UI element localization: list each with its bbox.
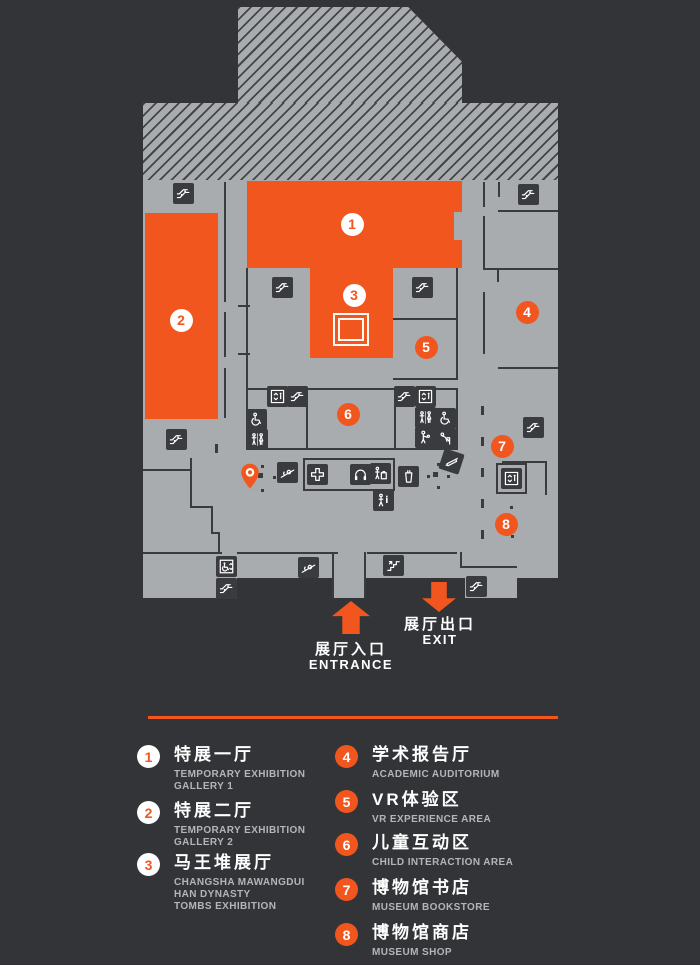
exit-label-en: EXIT [375, 632, 505, 647]
escalator-icon [523, 417, 544, 438]
legend-subtitle-1: TEMPORARY EXHIBITIONGALLERY 1 [174, 769, 305, 793]
baby-care-icon [415, 427, 436, 448]
legend-subtitle-6: CHILD INTERACTION AREA [372, 857, 513, 869]
legend-text-8: 博物馆商店MUSEUM SHOP [372, 924, 472, 959]
legend-item-6: 6儿童互动区CHILD INTERACTION AREA [335, 834, 513, 869]
column-dot-mark [427, 475, 430, 478]
wall-dash-mark [481, 530, 484, 539]
escalator-icon [287, 386, 308, 407]
column-dot-mark [510, 506, 513, 509]
escalator-icon [166, 429, 187, 450]
wall-segment [393, 378, 458, 380]
legend-subtitle-line: TEMPORARY EXHIBITION [174, 769, 305, 781]
water-dispenser-icon [398, 466, 419, 487]
legend-badge-6: 6 [335, 833, 358, 856]
wall-segment [393, 318, 458, 320]
escalator-icon [173, 183, 194, 204]
map-badge-7: 7 [491, 435, 514, 458]
legend-subtitle-7: MUSEUM BOOKSTORE [372, 902, 490, 914]
wall-segment [246, 268, 248, 388]
legend-subtitle-line: GALLERY 1 [174, 781, 305, 793]
wall-segment [143, 552, 222, 554]
restroom-icon [415, 407, 436, 428]
legend-subtitle-line: VR EXPERIENCE AREA [372, 814, 491, 826]
legend-title-8: 博物馆商店 [372, 924, 472, 942]
elevator-icon [501, 468, 522, 489]
legend-badge-3: 3 [137, 853, 160, 876]
map-badge-6: 6 [337, 403, 360, 426]
map-badge-1: 1 [341, 213, 364, 236]
wall-dash-mark [481, 468, 484, 477]
wall-segment [367, 552, 457, 554]
legend-subtitle-2: TEMPORARY EXHIBITIONGALLERY 2 [174, 825, 305, 849]
legend-text-5: VR体验区VR EXPERIENCE AREA [372, 791, 491, 826]
entrance-arrow-icon [332, 601, 370, 634]
wall-segment [303, 458, 395, 460]
wall-segment [303, 458, 305, 491]
column-dot-mark [437, 486, 440, 489]
legend-badge-5: 5 [335, 790, 358, 813]
legend-subtitle-line: MUSEUM SHOP [372, 947, 472, 959]
legend-divider [148, 716, 558, 719]
legend-text-2: 特展二厅TEMPORARY EXHIBITIONGALLERY 2 [174, 802, 305, 849]
legend-text-3: 马王堆展厅CHANGSHA MAWANGDUIHAN DYNASTYTOMBS … [174, 854, 305, 913]
legend-title-3: 马王堆展厅 [174, 854, 305, 872]
wall-segment [483, 268, 558, 270]
central-exhibit-platform-inner [338, 318, 364, 341]
escalator-icon [412, 277, 433, 298]
escalator-icon [216, 578, 237, 599]
wall-segment [218, 532, 220, 554]
column-dot-mark [261, 465, 264, 468]
legend-item-1: 1特展一厅TEMPORARY EXHIBITIONGALLERY 1 [137, 746, 305, 793]
column-dot-mark [273, 476, 276, 479]
map-badge-4: 4 [516, 301, 539, 324]
wall-segment [143, 469, 190, 471]
wall-segment [364, 552, 366, 598]
legend-badge-4: 4 [335, 745, 358, 768]
wall-segment [456, 268, 458, 380]
wall-segment [238, 305, 250, 307]
wall-segment [224, 312, 226, 357]
wall-segment [393, 458, 395, 491]
legend-subtitle-line: HAN DYNASTY [174, 889, 305, 901]
wall-segment [190, 506, 213, 508]
legend-item-8: 8博物馆商店MUSEUM SHOP [335, 924, 472, 959]
legend-badge-8: 8 [335, 923, 358, 946]
wall-dash-mark [481, 499, 484, 508]
ramp-icon [298, 557, 319, 578]
map-badge-2: 2 [170, 309, 193, 332]
wall-segment [224, 368, 226, 418]
legend-item-4: 4学术报告厅ACADEMIC AUDITORIUM [335, 746, 500, 781]
legend-subtitle-5: VR EXPERIENCE AREA [372, 814, 491, 826]
legend-badge-7: 7 [335, 878, 358, 901]
legend-subtitle-line: ACADEMIC AUDITORIUM [372, 769, 500, 781]
exit-arrow-icon [422, 582, 456, 612]
legend-subtitle-8: MUSEUM SHOP [372, 947, 472, 959]
audio-guide-icon [350, 464, 371, 485]
legend-item-2: 2特展二厅TEMPORARY EXHIBITIONGALLERY 2 [137, 802, 305, 849]
elevator-icon-box [496, 463, 527, 494]
stairs-icon [383, 555, 404, 576]
wall-segment [460, 566, 517, 568]
legend-subtitle-3: CHANGSHA MAWANGDUIHAN DYNASTYTOMBS EXHIB… [174, 877, 305, 913]
legend-subtitle-line: CHANGSHA MAWANGDUI [174, 877, 305, 889]
wall-segment [224, 182, 226, 302]
column-dot-mark [433, 472, 438, 477]
map-badge-8: 8 [495, 513, 518, 536]
wall-dash-mark [481, 406, 484, 415]
hatched-closed-area-top [238, 7, 462, 103]
entrance-corridor [334, 578, 364, 598]
wall-segment [498, 210, 558, 212]
column-dot-mark [447, 475, 450, 478]
wall-segment [456, 388, 458, 450]
escalator-icon [466, 576, 487, 597]
legend-subtitle-line: GALLERY 2 [174, 837, 305, 849]
wheelchair-icon [435, 408, 456, 429]
map-badge-3: 3 [343, 284, 366, 307]
legend-subtitle-line: TOMBS EXHIBITION [174, 901, 305, 913]
entrance-label-en: ENTRANCE [286, 657, 416, 672]
escalator-icon [394, 386, 415, 407]
wall-segment [246, 448, 458, 450]
legend-text-4: 学术报告厅ACADEMIC AUDITORIUM [372, 746, 500, 781]
legend-item-5: 5VR体验区VR EXPERIENCE AREA [335, 791, 491, 826]
restroom-icon [247, 429, 268, 450]
legend-text-6: 儿童互动区CHILD INTERACTION AREA [372, 834, 513, 869]
wall-segment [238, 353, 250, 355]
first-aid-icon [307, 464, 328, 485]
wall-segment [483, 292, 485, 354]
wall-segment [332, 552, 334, 598]
legend-title-7: 博物馆书店 [372, 879, 490, 897]
wall-segment [483, 216, 485, 268]
ramp-icon [277, 462, 298, 483]
hatched-closed-area-band [143, 103, 558, 180]
legend-badge-1: 1 [137, 745, 160, 768]
legend-subtitle-line: CHILD INTERACTION AREA [372, 857, 513, 869]
legend-subtitle-4: ACADEMIC AUDITORIUM [372, 769, 500, 781]
wall-segment [483, 182, 485, 207]
room1-notch [454, 212, 462, 240]
museum-floor-plan-page: 12345678 展厅入口 ENTRANCE 展厅出口 EXIT 1特展一厅TE… [0, 0, 700, 965]
accessible-elevator-icon [216, 556, 237, 577]
wall-segment [190, 458, 192, 508]
drinking-fountain-icon [435, 428, 456, 449]
escalator-icon [518, 184, 539, 205]
wall-segment [498, 182, 500, 197]
wall-segment [211, 506, 213, 534]
location-pin-icon [240, 463, 260, 490]
elevator-icon [267, 386, 288, 407]
legend-title-4: 学术报告厅 [372, 746, 500, 764]
wall-segment [498, 367, 558, 369]
central-exhibit-platform [333, 313, 369, 346]
wall-dash-mark [481, 437, 484, 446]
legend-title-1: 特展一厅 [174, 746, 305, 764]
column-dot-mark [261, 489, 264, 492]
wall-segment [237, 552, 338, 554]
legend-text-7: 博物馆书店MUSEUM BOOKSTORE [372, 879, 490, 914]
legend-text-1: 特展一厅TEMPORARY EXHIBITIONGALLERY 1 [174, 746, 305, 793]
legend-title-5: VR体验区 [372, 791, 491, 809]
wall-segment [545, 461, 547, 495]
wall-segment [497, 270, 499, 282]
legend-title-2: 特展二厅 [174, 802, 305, 820]
legend-subtitle-line: MUSEUM BOOKSTORE [372, 902, 490, 914]
wall-dash-mark [215, 444, 218, 453]
information-icon [373, 490, 394, 511]
elevator-icon [415, 386, 436, 407]
wheelchair-icon [246, 409, 267, 430]
map-badge-5: 5 [415, 336, 438, 359]
legend-item-7: 7博物馆书店MUSEUM BOOKSTORE [335, 879, 490, 914]
escalator-icon [272, 277, 293, 298]
legend-badge-2: 2 [137, 801, 160, 824]
locker-icon [370, 463, 391, 484]
legend-title-6: 儿童互动区 [372, 834, 513, 852]
legend-subtitle-line: TEMPORARY EXHIBITION [174, 825, 305, 837]
exit-label-cn: 展厅出口 [375, 613, 505, 634]
legend-item-3: 3马王堆展厅CHANGSHA MAWANGDUIHAN DYNASTYTOMBS… [137, 854, 305, 913]
